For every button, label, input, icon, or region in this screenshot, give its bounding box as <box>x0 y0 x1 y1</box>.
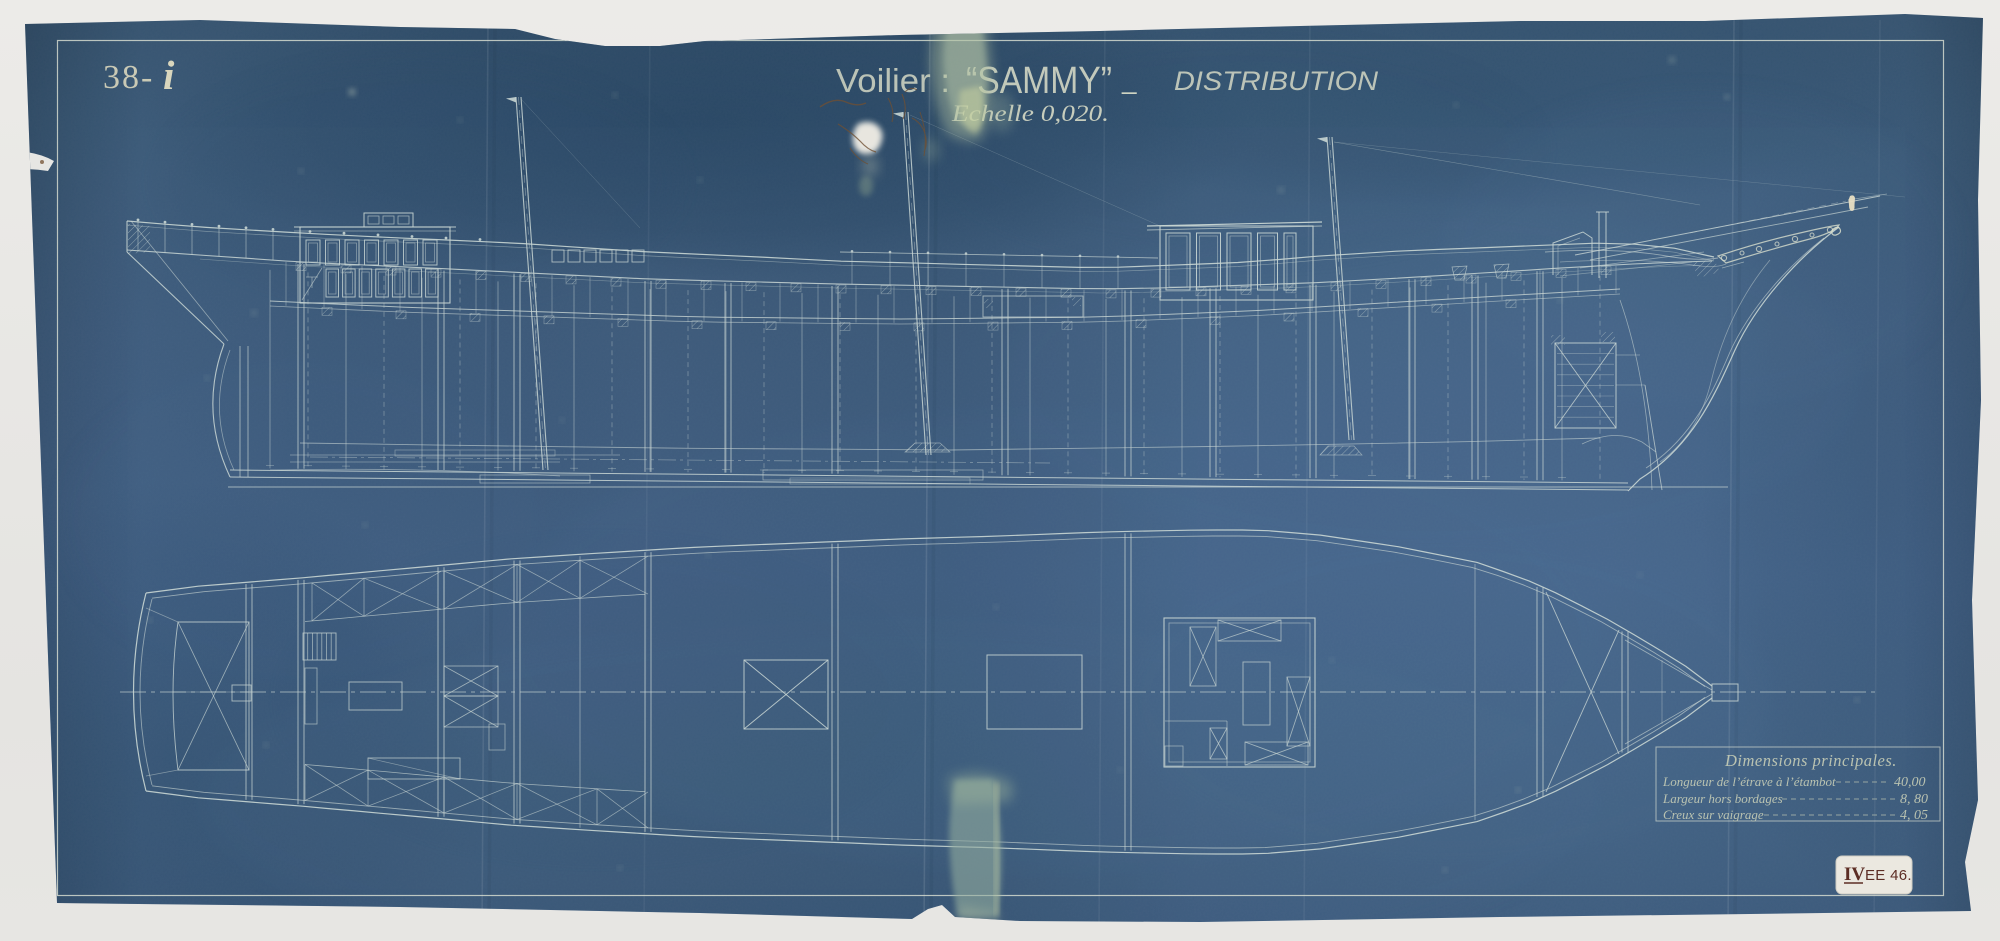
svg-text:8, 80: 8, 80 <box>1900 792 1928 807</box>
svg-text:Dimensions principales.: Dimensions principales. <box>1724 751 1897 770</box>
svg-text:i: i <box>163 52 175 98</box>
svg-text:Creux sur vaigrage: Creux sur vaigrage <box>1663 807 1764 822</box>
svg-text:Longueur de l’étrave à l’étamb: Longueur de l’étrave à l’étambot <box>1662 774 1836 789</box>
svg-text:_: _ <box>1121 65 1137 95</box>
svg-text:4, 05: 4, 05 <box>1900 808 1928 823</box>
svg-text:38-: 38- <box>103 59 154 96</box>
svg-text:IV: IV <box>1844 864 1865 885</box>
svg-text:EE 46.: EE 46. <box>1865 867 1912 884</box>
svg-text:DISTRIBUTION: DISTRIBUTION <box>1174 66 1379 96</box>
svg-text:Largeur hors bordages: Largeur hors bordages <box>1662 791 1783 806</box>
svg-text:40,00: 40,00 <box>1894 775 1926 790</box>
